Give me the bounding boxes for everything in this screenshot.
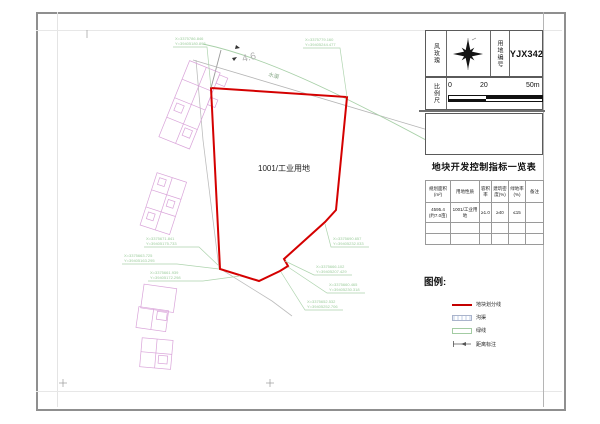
building-cluster-c: [136, 284, 177, 332]
legend-label: 绿线: [476, 327, 486, 334]
scale-tick-0: 0: [448, 82, 452, 89]
legend-item-ditch: 沟渠: [452, 314, 486, 321]
scale-tick-50m: 50m: [526, 82, 540, 89]
empty-cell: [451, 234, 480, 245]
empty-cell: [480, 234, 492, 245]
empty-cell: [526, 234, 544, 245]
coord-label: Y=39405252.706: [307, 304, 338, 309]
col-header-use: 用地性质: [451, 181, 480, 203]
empty-cell: [480, 223, 492, 234]
coord-label: Y=39405207.429: [316, 269, 347, 274]
parcel-boundary: [211, 88, 347, 281]
legend-title: 图例:: [424, 274, 446, 288]
cell-density: ≥40: [492, 203, 509, 223]
green-line-swatch-icon: [452, 328, 472, 334]
col-header-area: 规划面积(m²): [426, 181, 451, 203]
empty-cell: [426, 223, 451, 234]
col-header-green: 绿地率(%): [509, 181, 526, 203]
plot-number-value: YJX342: [509, 31, 544, 76]
drawing-sheet: 4.6 水渠 1001/工业用地 X=3375786.846 Y=3940518…: [0, 0, 600, 424]
ditch-swatch-icon: [452, 315, 472, 321]
cell-area: 4595.4 (约7.0亩): [426, 203, 451, 223]
parcel-line-swatch-icon: [452, 304, 472, 306]
section-divider: [419, 110, 545, 112]
empty-cell: [492, 223, 509, 234]
empty-cell: [451, 223, 480, 234]
cell-remark: [526, 203, 544, 223]
area-note: (约7.0亩): [426, 213, 450, 218]
dimension-label: 4.6: [241, 51, 258, 65]
dimension-arrow-icon: [235, 45, 240, 49]
distance-swatch-icon: [452, 340, 472, 348]
dimension-arrow-icon: [232, 57, 237, 61]
cell-use: 1001/工业用地: [451, 203, 480, 223]
cadastral-boundary-line: [196, 60, 292, 316]
scale-box: 比例尺 0 20 50m: [425, 77, 543, 110]
windrose-field-label: 风玫瑰: [426, 31, 446, 76]
col-header-remark: 备注: [526, 181, 544, 203]
empty-cell: [426, 234, 451, 245]
parcel-label: 1001/工业用地: [258, 163, 310, 173]
building-cluster-d: [140, 338, 173, 370]
coord-label: Y=39405175.733: [146, 241, 177, 246]
building-cluster-b: [140, 173, 186, 235]
scale-field-label: 比例尺: [426, 78, 446, 109]
empty-cell: [492, 234, 509, 245]
building-cluster-a: [159, 61, 229, 153]
col-header-density: 建筑密度(%): [492, 181, 509, 203]
legend-label: 距离标注: [476, 341, 496, 348]
coord-label: Y=39405232.033: [333, 241, 364, 246]
scale-tick-20: 20: [480, 82, 488, 89]
titleblock-top-box: 风玫瑰 用地编号 YJX342: [425, 30, 543, 77]
legend-label: 沟渠: [476, 314, 486, 321]
empty-cell: [526, 223, 544, 234]
wind-rose-icon: [452, 37, 484, 71]
channel-label: 水渠: [267, 70, 280, 81]
empty-cell: [509, 234, 526, 245]
index-table-title: 地块开发控制指标一览表: [425, 160, 543, 173]
cell-divider: [446, 78, 447, 109]
legend-item-distance: 距离标注: [452, 340, 496, 348]
col-header-far: 容积率: [480, 181, 492, 203]
cell-divider: [446, 31, 447, 76]
registration-marks: [59, 30, 274, 387]
cell-green: ≤15: [509, 203, 526, 223]
scale-bar: [448, 95, 543, 102]
north-mark: [472, 38, 476, 40]
legend-label: 地块划分线: [476, 301, 501, 308]
legend-item-parcel-line: 地块划分线: [452, 301, 501, 308]
coord-label: Y=39405172.298: [150, 275, 181, 280]
plot-number-field-label: 用地编号: [490, 31, 509, 76]
coordinate-labels: X=3375786.846 Y=39405180.893 X=3375779.1…: [124, 36, 364, 309]
empty-titleblock-box: [425, 113, 543, 155]
coord-label: Y=39405244.477: [305, 42, 336, 47]
empty-cell: [509, 223, 526, 234]
cell-far: ≥1.0: [480, 203, 492, 223]
index-table: 规划面积(m²) 用地性质 容积率 建筑密度(%) 绿地率(%) 备注 4595…: [425, 180, 544, 245]
legend-item-green-line: 绿线: [452, 327, 486, 334]
boundary-extension-line: [211, 50, 221, 88]
coord-label: Y=39405230.318: [329, 287, 360, 292]
coord-label: Y=39405180.893: [175, 41, 206, 46]
coord-label: Y=39405163.295: [124, 258, 155, 263]
